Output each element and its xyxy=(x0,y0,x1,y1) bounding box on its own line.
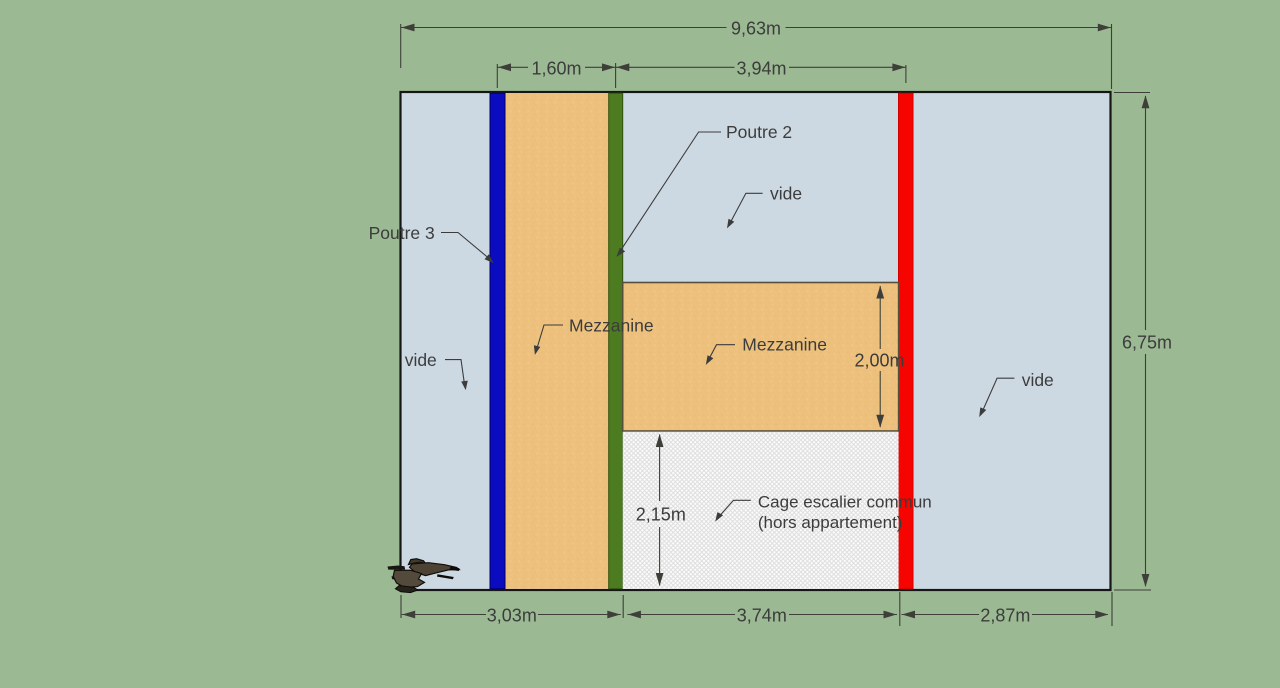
svg-text:9,63m: 9,63m xyxy=(731,19,781,39)
svg-text:Mezzanine: Mezzanine xyxy=(742,335,827,355)
svg-text:vide: vide xyxy=(770,184,802,204)
svg-text:(hors appartement): (hors appartement) xyxy=(758,513,903,532)
svg-text:Cage escalier commun: Cage escalier commun xyxy=(758,493,932,512)
svg-text:Poutre 2: Poutre 2 xyxy=(726,122,792,142)
svg-text:2,15m: 2,15m xyxy=(636,504,686,524)
svg-text:vide: vide xyxy=(405,350,437,370)
svg-text:6,75m: 6,75m xyxy=(1122,333,1172,353)
svg-text:Mezzanine: Mezzanine xyxy=(569,316,654,336)
svg-text:2,00m: 2,00m xyxy=(854,351,904,371)
svg-text:Poutre 3: Poutre 3 xyxy=(369,223,435,243)
svg-text:3,94m: 3,94m xyxy=(736,58,786,78)
svg-text:3,74m: 3,74m xyxy=(737,605,787,625)
svg-text:2,87m: 2,87m xyxy=(980,605,1030,625)
svg-text:1,60m: 1,60m xyxy=(531,58,581,78)
svg-text:3,03m: 3,03m xyxy=(487,605,537,625)
svg-text:vide: vide xyxy=(1022,370,1054,390)
